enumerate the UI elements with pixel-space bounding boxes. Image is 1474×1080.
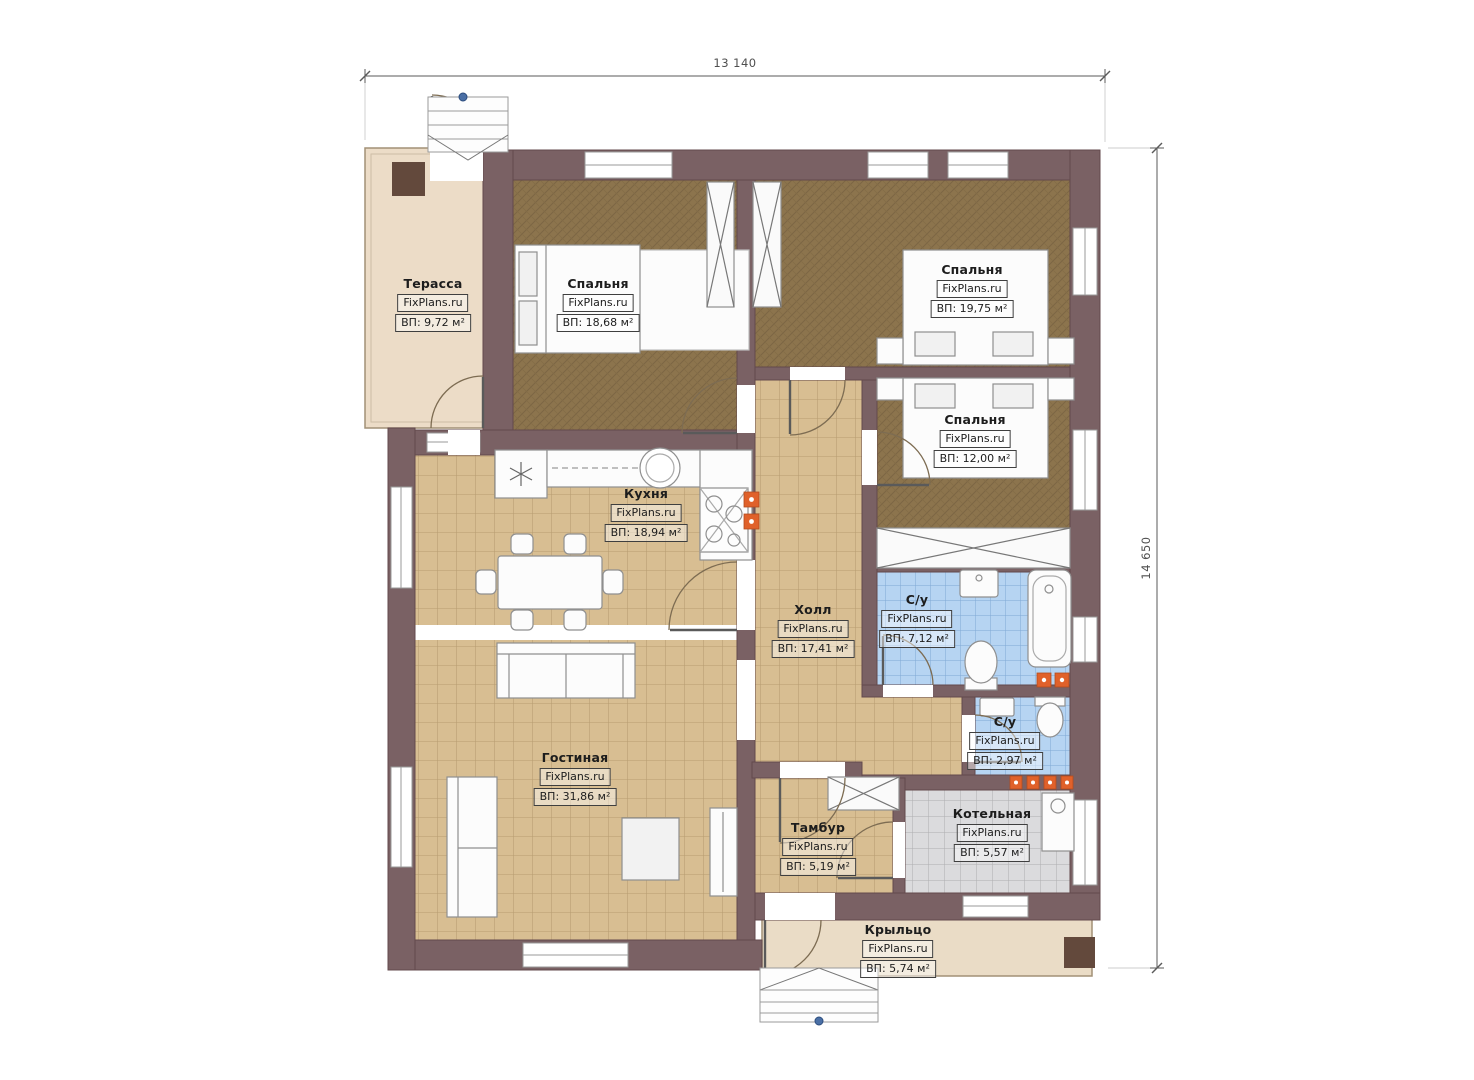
window-bathroom-right (1073, 617, 1097, 662)
window-bedroom-2-right (1073, 228, 1097, 295)
window-kitchen-left (391, 487, 412, 588)
room-name: Котельная (953, 806, 1032, 821)
dimension-width-label: 13 140 (713, 56, 756, 70)
room-label-kitchen: Кухня FixPlans.ru ВП: 18,94 м² (605, 486, 688, 542)
window-boiler-bottom (963, 896, 1028, 917)
bathtub-icon (1028, 570, 1071, 667)
opening-boiler (893, 822, 905, 878)
opening-bedroom-2 (790, 367, 845, 380)
room-watermark: FixPlans.ru (936, 280, 1007, 298)
room-label-bathroom-small: С/у FixPlans.ru ВП: 2,97 м² (967, 714, 1043, 770)
boiler-icon (1042, 793, 1074, 851)
room-label-vestibule: Тамбур FixPlans.ru ВП: 5,19 м² (780, 820, 856, 876)
window-living-left (391, 767, 412, 867)
room-watermark: FixPlans.ru (881, 610, 952, 628)
window-living-bottom (523, 943, 628, 967)
room-area: ВП: 5,19 м² (780, 858, 856, 876)
terrace-column (392, 162, 425, 196)
opening-bedroom-3 (862, 430, 877, 485)
room-watermark: FixPlans.ru (562, 294, 633, 312)
room-area: ВП: 18,94 м² (605, 524, 688, 542)
hall-floor (755, 380, 862, 775)
room-area: ВП: 5,74 м² (860, 960, 936, 978)
room-label-porch: Крыльцо FixPlans.ru ВП: 5,74 м² (860, 922, 936, 978)
opening-terrace-kitchen (448, 430, 480, 455)
room-area: ВП: 31,86 м² (534, 788, 617, 806)
room-label-boiler-room: Котельная FixPlans.ru ВП: 5,57 м² (953, 806, 1032, 862)
opening-bedroom-1 (737, 385, 755, 433)
room-watermark: FixPlans.ru (777, 620, 848, 638)
hall-floor-extension (862, 697, 962, 775)
room-area: ВП: 19,75 м² (931, 300, 1014, 318)
window-bedroom-2-top-right (948, 152, 1008, 178)
wardrobe-bedroom-1 (707, 182, 734, 307)
window-boiler-right (1073, 800, 1097, 885)
room-name: С/у (879, 592, 955, 607)
room-name: Терасса (395, 276, 471, 291)
room-name: Холл (772, 602, 855, 617)
room-label-bedroom-3: Спальня FixPlans.ru ВП: 12,00 м² (934, 412, 1017, 468)
room-name: С/у (967, 714, 1043, 729)
room-name: Спальня (931, 262, 1014, 277)
room-area: ВП: 5,57 м² (954, 844, 1030, 862)
room-area: ВП: 12,00 м² (934, 450, 1017, 468)
toilet-bathroom-main (965, 641, 997, 690)
room-area: ВП: 2,97 м² (967, 752, 1043, 770)
room-watermark: FixPlans.ru (539, 768, 610, 786)
sofa (497, 643, 635, 698)
window-bedroom-3-right (1073, 430, 1097, 510)
room-label-living-room: Гостиная FixPlans.ru ВП: 31,86 м² (534, 750, 617, 806)
kitchen-lamp-square (495, 450, 547, 498)
room-watermark: FixPlans.ru (397, 294, 468, 312)
dimension-height-label: 14 650 (1139, 536, 1153, 579)
sink-bathroom-main (960, 570, 998, 597)
opening-living-hall (737, 660, 755, 740)
kitchen-stove-icon (700, 488, 748, 552)
room-area: ВП: 18,68 м² (557, 314, 640, 332)
dimension-right (1108, 143, 1164, 973)
floor-plan-canvas: Терасса FixPlans.ru ВП: 9,72 м² Спальня … (0, 0, 1474, 1080)
wardrobe-bedroom-2 (753, 182, 781, 307)
room-label-bedroom-2: Спальня FixPlans.ru ВП: 19,75 м² (931, 262, 1014, 318)
window-bedroom-2-top-left (868, 152, 928, 178)
room-watermark: FixPlans.ru (969, 732, 1040, 750)
terrace-steps (428, 93, 508, 160)
room-watermark: FixPlans.ru (610, 504, 681, 522)
room-label-bathroom-main: С/у FixPlans.ru ВП: 7,12 м² (879, 592, 955, 648)
opening-kitchen (737, 560, 755, 630)
room-area: ВП: 17,41 м² (772, 640, 855, 658)
room-name: Крыльцо (860, 922, 936, 937)
room-name: Спальня (557, 276, 640, 291)
porch-column (1064, 937, 1095, 968)
opening-bathroom-main (883, 685, 933, 697)
room-watermark: FixPlans.ru (862, 940, 933, 958)
floor-plan-drawing (0, 0, 1474, 1080)
opening-vestibule (780, 762, 845, 778)
room-area: ВП: 7,12 м² (879, 630, 955, 648)
room-name: Гостиная (534, 750, 617, 765)
window-bedroom-1-top (585, 152, 672, 178)
room-label-hall: Холл FixPlans.ru ВП: 17,41 м² (772, 602, 855, 658)
room-area: ВП: 9,72 м² (395, 314, 471, 332)
room-watermark: FixPlans.ru (956, 824, 1027, 842)
room-name: Кухня (605, 486, 688, 501)
room-label-terrace: Терасса FixPlans.ru ВП: 9,72 м² (395, 276, 471, 332)
room-watermark: FixPlans.ru (939, 430, 1010, 448)
opening-front-door (765, 893, 835, 920)
room-name: Тамбур (780, 820, 856, 835)
room-label-bedroom-1: Спальня FixPlans.ru ВП: 18,68 м² (557, 276, 640, 332)
coffee-table (622, 818, 679, 880)
side-sofa (447, 777, 497, 917)
tv-stand (710, 808, 737, 896)
room-watermark: FixPlans.ru (782, 838, 853, 856)
wardrobe-bedroom-3 (877, 528, 1070, 568)
room-name: Спальня (934, 412, 1017, 427)
